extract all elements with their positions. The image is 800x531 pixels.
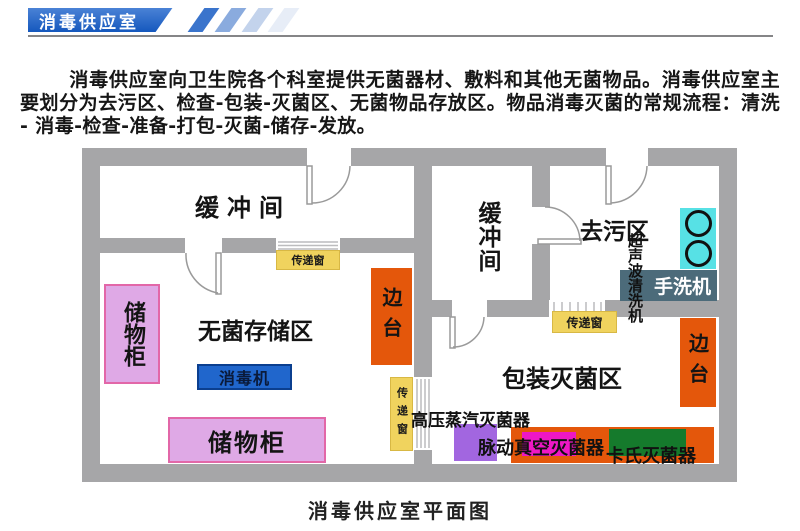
door-swing [545, 207, 580, 241]
hand-washer-label: 手洗机 [654, 272, 711, 299]
door-leaf [216, 253, 221, 294]
page: 消毒供应室 消毒供应室向卫生院各个科室提供无菌器材、敷料和其他无菌物品。消毒供应… [0, 0, 800, 531]
door-leaf [307, 166, 312, 204]
disinfector-machine: 消毒机 [197, 364, 292, 390]
pass-window-right-label: 传递窗 [566, 314, 602, 331]
cassette-sterilizer-label: 卡氏灭菌器 [606, 442, 696, 468]
ultrasonic-sink [680, 208, 716, 269]
door-swing [186, 253, 218, 293]
storage-cabinet-left: 储物柜 [104, 284, 160, 384]
door-swing [453, 317, 484, 347]
room-label-buffer-middle: 缓冲间 [470, 201, 504, 273]
banner-stripe-1 [188, 8, 220, 32]
room-label-buffer-top-left: 缓冲间 [195, 188, 291, 223]
storage-cabinet-bottom-label: 储物柜 [208, 423, 286, 458]
pass-window-center-label: 传递窗 [394, 387, 410, 441]
room-label-packing-sterilization: 包装灭菌区 [502, 359, 622, 394]
storage-cabinet-bottom: 储物柜 [168, 417, 326, 463]
side-table-right-label: 边台 [684, 333, 713, 393]
floor-plan: 缓冲间 缓冲间 去污区 无菌存储区 包装灭菌区 储物柜 储物柜 消毒机 边台 传… [0, 145, 800, 494]
door-swing [611, 166, 647, 203]
ultrasonic-cleaner-label: 超声波清洗机 [626, 233, 643, 323]
sink-basin-icon [685, 210, 712, 237]
side-table-left-label: 边台 [377, 287, 406, 347]
figure-caption: 消毒供应室平面图 [0, 495, 800, 524]
pulse-vacuum-sterilizer-label: 脉动真空灭菌器 [478, 434, 604, 460]
pass-window-left: 传递窗 [276, 250, 340, 270]
door-leaf [450, 317, 455, 348]
header-divider [28, 35, 773, 37]
room-label-sterile-storage: 无菌存储区 [198, 312, 313, 346]
banner-stripe-2 [215, 8, 247, 32]
side-table-left: 边台 [371, 268, 412, 365]
door-leaf [538, 239, 581, 244]
page-title: 消毒供应室 [39, 8, 139, 33]
intro-paragraph: 消毒供应室向卫生院各个科室提供无菌器材、敷料和其他无菌物品。消毒供应室主要划分为… [20, 69, 780, 138]
side-table-right: 边台 [680, 318, 716, 407]
page-title-banner: 消毒供应室 [28, 8, 150, 32]
pass-window-right: 传递窗 [552, 311, 617, 333]
sink-basin-icon [685, 240, 712, 267]
door-swing [312, 166, 350, 203]
pass-window-center: 传递窗 [390, 377, 413, 451]
banner-stripe-4 [268, 8, 300, 32]
storage-cabinet-left-label: 储物柜 [116, 301, 148, 367]
disinfector-label: 消毒机 [219, 365, 270, 389]
door-leaf [606, 166, 611, 204]
pass-window-left-label: 传递窗 [292, 252, 325, 268]
steam-sterilizer-label: 高压蒸汽灭菌器 [411, 406, 530, 431]
